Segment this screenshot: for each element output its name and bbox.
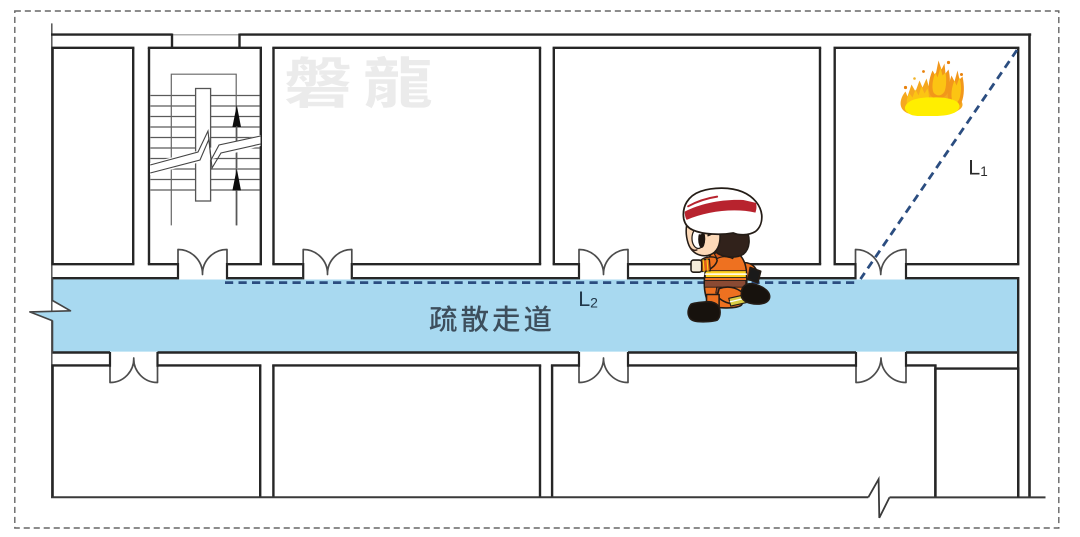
svg-text:L1: L1 [968,156,987,180]
